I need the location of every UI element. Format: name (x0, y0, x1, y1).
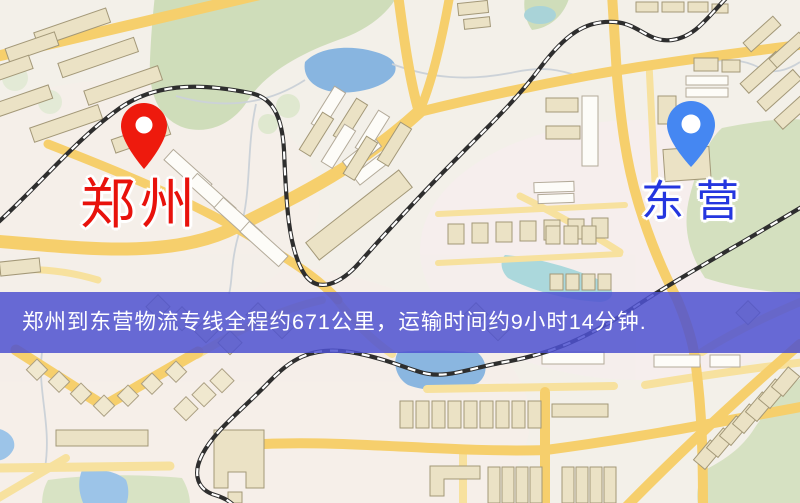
destination-city-label: 东营 (641, 181, 751, 224)
caption-bar: 郑州到东营物流专线全程约671公里，运输时间约9小时14分钟. (0, 292, 800, 353)
destination-pin-shape (667, 101, 715, 167)
origin-city-label: 郑州 (80, 177, 200, 232)
origin-pin-icon (121, 103, 167, 169)
map-container: 郑州 东营 郑州到东营物流专线全程约671公里，运输时间约9小时14分钟. (0, 0, 800, 503)
caption-text: 郑州到东营物流专线全程约671公里，运输时间约9小时14分钟. (0, 292, 800, 353)
destination-pin-icon (667, 101, 715, 167)
map-canvas (0, 0, 800, 503)
origin-pin-shape (121, 103, 167, 169)
